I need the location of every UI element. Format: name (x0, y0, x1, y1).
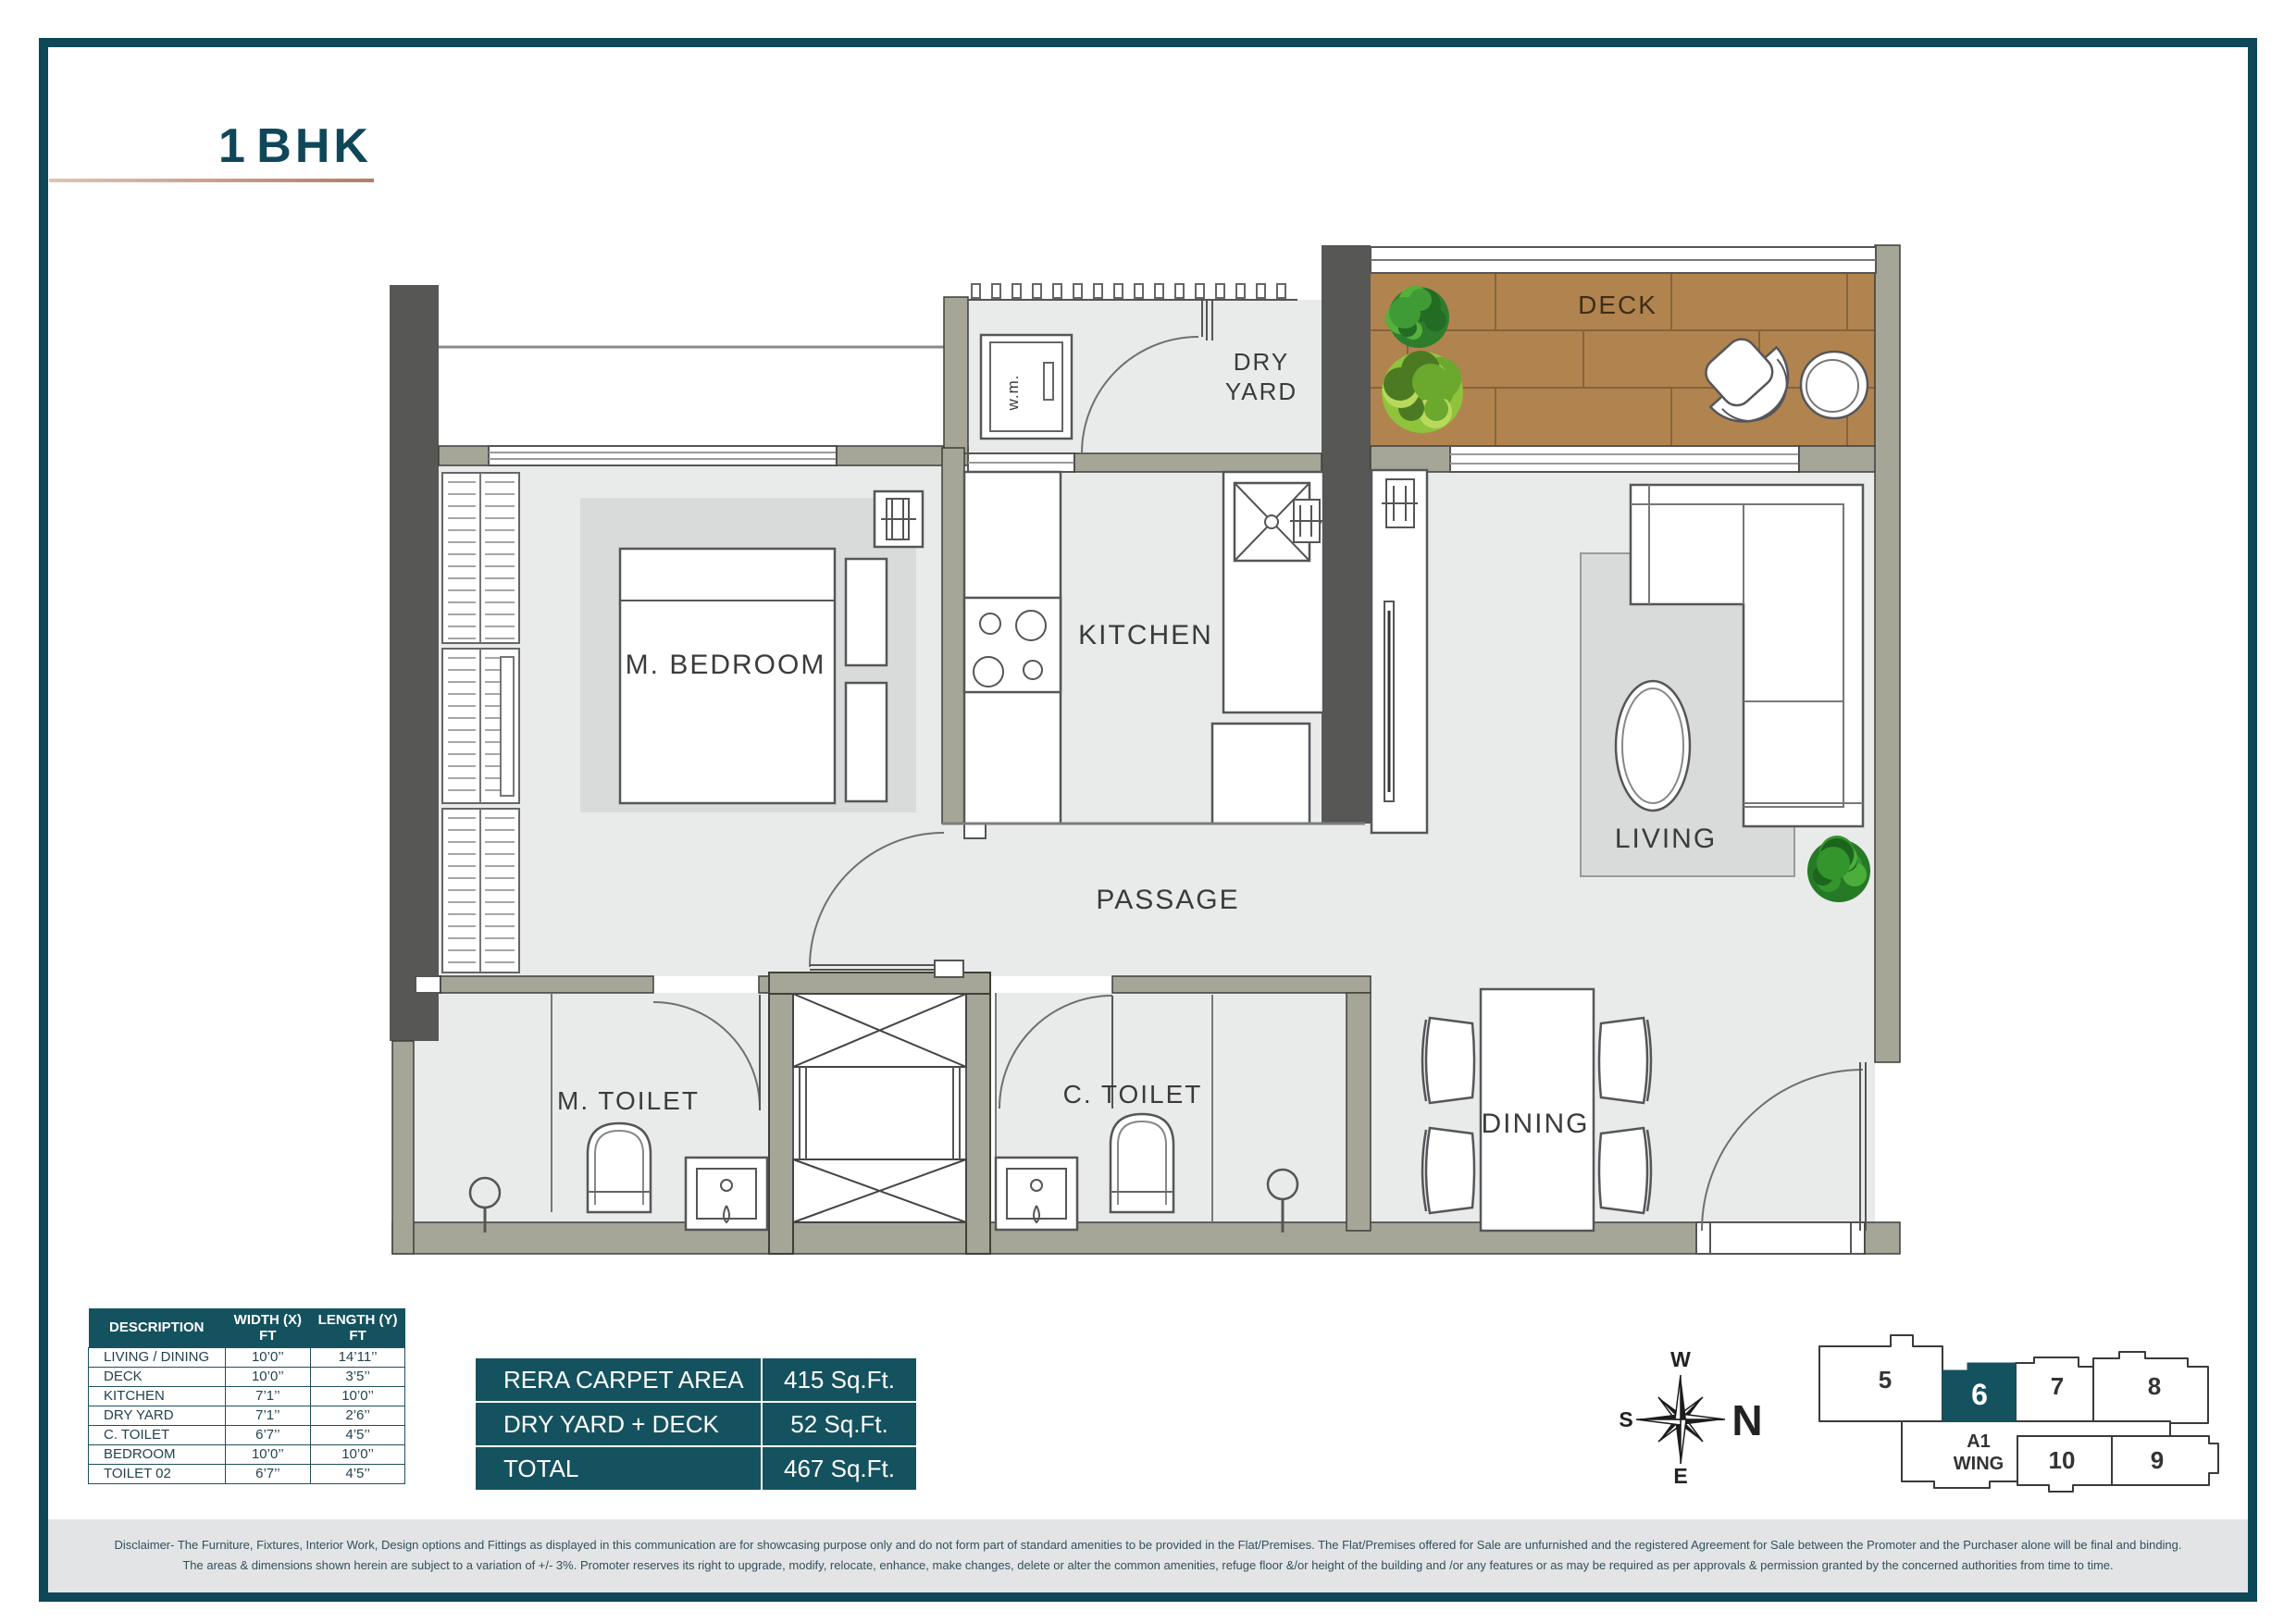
svg-text:KITCHEN: KITCHEN (1078, 620, 1213, 650)
svg-text:WING: WING (1954, 1454, 2004, 1474)
svg-text:w.m.: w.m. (1004, 375, 1022, 412)
svg-text:YARD: YARD (1225, 378, 1297, 405)
svg-text:6: 6 (1971, 1378, 1988, 1411)
svg-text:10: 10 (2049, 1446, 2076, 1474)
svg-text:PASSAGE: PASSAGE (1096, 885, 1239, 915)
svg-text:C. TOILET: C. TOILET (1063, 1080, 1203, 1109)
svg-text:8: 8 (2148, 1372, 2161, 1400)
svg-text:S: S (1619, 1407, 1632, 1431)
svg-text:9: 9 (2151, 1446, 2164, 1474)
svg-text:W: W (1670, 1347, 1691, 1371)
svg-text:M. TOILET: M. TOILET (557, 1086, 700, 1115)
svg-text:DRY: DRY (1234, 348, 1289, 376)
svg-text:5: 5 (1879, 1366, 1892, 1394)
svg-text:N: N (1731, 1396, 1762, 1444)
svg-text:DECK: DECK (1578, 291, 1657, 319)
svg-text:E: E (1673, 1464, 1687, 1488)
svg-text:A1: A1 (1967, 1431, 1991, 1452)
svg-text:M. BEDROOM: M. BEDROOM (626, 650, 826, 680)
svg-text:7: 7 (2051, 1372, 2064, 1400)
svg-text:DINING: DINING (1482, 1109, 1590, 1139)
svg-text:LIVING: LIVING (1615, 824, 1717, 854)
